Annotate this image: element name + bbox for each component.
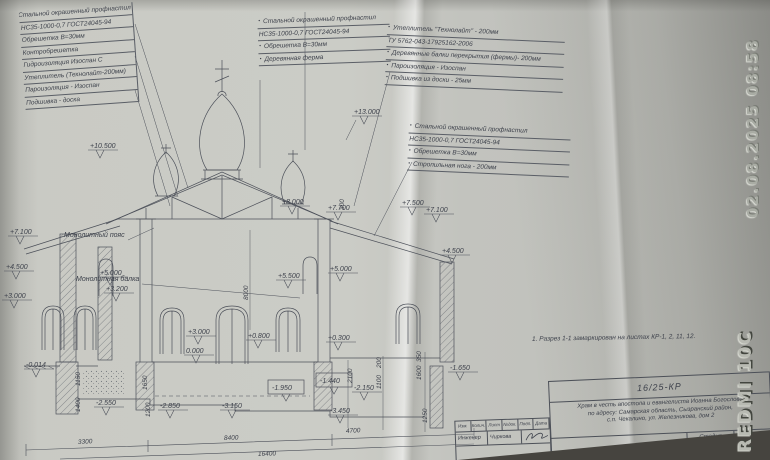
svg-text:-3.450: -3.450	[330, 408, 350, 415]
camera-model-watermark: REDMI 10C	[736, 330, 756, 452]
dimension-horizontal: 8400	[224, 434, 239, 442]
elevation-mark: +10.500	[88, 143, 118, 158]
elevation-mark: +0.800	[246, 333, 276, 348]
dimension-vertical: 8000	[243, 285, 250, 300]
svg-text:+5.500: +5.500	[278, 273, 300, 280]
spec-table-left-roof: Стальной окрашенный профнастилНС35-1000-…	[19, 2, 140, 110]
svg-text:-1.950: -1.950	[272, 385, 292, 392]
camera-timestamp: 02.08.2025 08:58	[744, 38, 762, 218]
elevation-mark: +5.000	[328, 266, 358, 281]
svg-text:+3.200: +3.200	[106, 286, 128, 293]
svg-text:+8.000: +8.000	[282, 199, 304, 206]
engineer-name: Чиркова	[488, 430, 522, 444]
spec-table-ceiling: •Утеплитель "Технолайт" - 200ммТУ 5762-0…	[385, 22, 566, 92]
dimension-vertical: 2100	[347, 368, 354, 384]
rev-column-label: Лист	[487, 420, 503, 431]
rev-column-label: Колич.	[471, 421, 487, 432]
dimension-horizontal: 4700	[346, 427, 361, 435]
svg-text:+0.300: +0.300	[328, 335, 350, 342]
elevation-mark: -0.014	[24, 362, 54, 377]
rev-column-label: №док.	[502, 419, 518, 430]
engineer-row: Инженер Чиркова	[456, 429, 550, 446]
svg-text:+4.500: +4.500	[6, 264, 28, 271]
svg-text:-3.150: -3.150	[222, 403, 242, 410]
elevation-mark: +7.100	[8, 229, 38, 244]
dimension-horizontal: 3300	[78, 438, 93, 446]
svg-text:+3.000: +3.000	[188, 329, 210, 336]
rev-column-label: Дата	[534, 418, 550, 429]
dimension-vertical: 200	[376, 357, 383, 369]
elevation-mark: +8.000	[280, 199, 310, 214]
dimension-vertical: 1250	[422, 408, 429, 423]
svg-text:+0.800: +0.800	[248, 333, 270, 340]
svg-text:+7.100: +7.100	[10, 229, 32, 236]
rev-column-label: Изм.	[455, 421, 471, 432]
engineer-signature	[522, 429, 550, 443]
elevation-mark: -1.650	[448, 365, 478, 380]
dimension-vertical: 300	[339, 199, 346, 210]
elevation-mark: +7.100	[424, 207, 454, 222]
dimension-vertical: 1150	[75, 372, 82, 386]
label-monolithic-belt: Монолитный пояс	[64, 232, 125, 239]
signature-scribble	[524, 429, 550, 443]
elevation-mark: +3.000	[2, 293, 32, 308]
spec-table-apse-roof: •Стальной окрашенный профнастилНС35-1000…	[407, 120, 571, 177]
svg-text:-2.150: -2.150	[354, 385, 374, 392]
dimension-horizontal: 16400	[258, 450, 277, 458]
elevation-mark: +3.000	[186, 329, 216, 344]
elevation-mark: +5.500	[276, 273, 306, 288]
boxed-elevation-mark: -1.950	[268, 380, 304, 401]
engineer-role: Инженер	[456, 432, 489, 446]
svg-text:-1.650: -1.650	[450, 365, 470, 372]
dimension-vertical: 1650	[142, 375, 149, 390]
dimension-vertical: 1600	[416, 365, 423, 380]
svg-text:-2.850: -2.850	[160, 403, 180, 410]
elevation-mark: +4.500	[4, 264, 34, 279]
spec-table-center-roof: •Стальной окрашенный профнастилНС35-1000…	[257, 12, 391, 67]
dimension-vertical: 1400	[75, 397, 82, 412]
svg-text:-1.440: -1.440	[320, 378, 340, 385]
svg-text:+5.000: +5.000	[330, 266, 352, 273]
elevation-mark: -2.550	[94, 400, 124, 415]
photo-of-architectural-drawing: +13.000+10.500+8.000+7.700+7.500+7.100+7…	[0, 0, 770, 460]
svg-text:+10.500: +10.500	[90, 143, 116, 150]
elevation-mark: +13.000	[352, 109, 382, 124]
elevation-mark: 0.000	[184, 348, 214, 363]
elevation-mark: +0.300	[326, 335, 356, 350]
svg-text:+3.000: +3.000	[4, 293, 26, 300]
svg-text:+7.500: +7.500	[402, 200, 424, 207]
dimension-vertical: 1200	[145, 402, 152, 417]
svg-text:0.000: 0.000	[186, 348, 204, 355]
dimension-vertical: 350	[416, 351, 423, 362]
label-monolithic-beam: Монолитная балка	[76, 276, 139, 283]
svg-text:+13.000: +13.000	[354, 109, 380, 116]
svg-text:-2.550: -2.550	[96, 400, 116, 407]
rev-column-label: Подп.	[518, 419, 534, 430]
elevation-mark: +4.500	[440, 248, 470, 263]
svg-text:-0.014: -0.014	[26, 362, 46, 369]
elevation-mark: -3.450	[328, 408, 358, 423]
svg-text:+7.100: +7.100	[426, 207, 448, 214]
dimension-vertical: 1100	[376, 375, 383, 389]
svg-text:+4.500: +4.500	[442, 248, 464, 255]
